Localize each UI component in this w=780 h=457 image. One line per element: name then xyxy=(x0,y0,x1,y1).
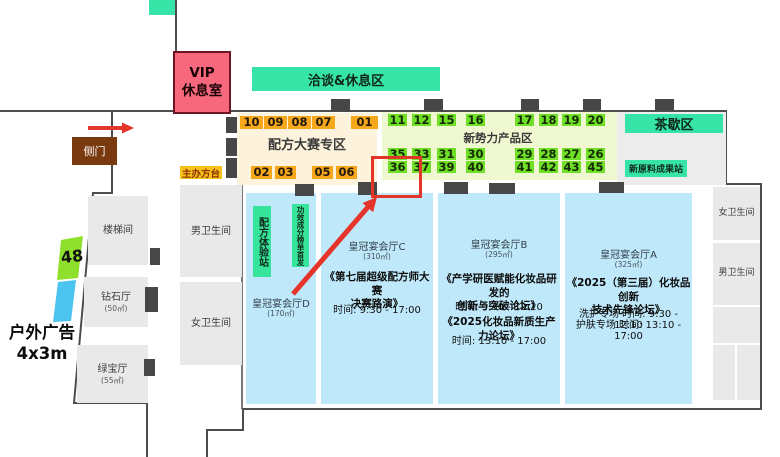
door xyxy=(521,99,539,111)
hall-b: 皇冠宴会厅B (295㎡) 《产学研医赋能化妆品研发的 创新与突破论坛》 时间:… xyxy=(438,193,560,404)
booth: 03 xyxy=(275,166,296,179)
event-time: 时间: 13:10 - 17:00 xyxy=(438,332,560,347)
door xyxy=(145,287,158,312)
booth: 17 xyxy=(515,114,534,126)
room-label: 绿宝厅 xyxy=(98,363,128,376)
door xyxy=(599,182,624,193)
door xyxy=(226,158,237,178)
booth: 45 xyxy=(586,161,605,173)
mens-restroom-right: 男卫生间 xyxy=(713,243,760,305)
booth: 11 xyxy=(388,114,407,126)
lounge-zone: 洽谈&休息区 xyxy=(252,67,440,91)
hall-area: (325㎡) xyxy=(565,259,692,270)
side-door: 侧门 xyxy=(72,137,117,165)
booth: 28 xyxy=(539,148,558,160)
event-time: 时间: 9:30 - 12:10 xyxy=(438,298,560,313)
door xyxy=(226,138,237,156)
outdoor-ad-label-line1: 户外广告 xyxy=(0,323,84,344)
mens-restroom-left: 男卫生间 xyxy=(180,185,242,277)
booth: 15 xyxy=(437,114,456,126)
booth: 05 xyxy=(312,166,333,179)
booth: 09 xyxy=(264,116,287,129)
booth: 10 xyxy=(240,116,263,129)
vip-lounge: VIP 休息室 xyxy=(173,51,231,114)
door xyxy=(655,99,674,111)
vip-label-line2: 休息室 xyxy=(182,83,223,101)
booth: 39 xyxy=(437,161,456,173)
hall-c: 皇冠宴会厅C (310㎡) 《第七届超级配方师大赛 决赛路演》 时间: 9:30… xyxy=(321,193,433,404)
utility-room xyxy=(737,345,760,400)
booth: 16 xyxy=(466,114,485,126)
door xyxy=(424,99,443,111)
room-label: 楼梯间 xyxy=(103,224,133,237)
booth: 27 xyxy=(562,148,581,160)
womens-restroom-right: 女卫生间 xyxy=(713,187,760,240)
room-label: 男卫生间 xyxy=(191,225,231,238)
hall-a: 皇冠宴会厅A (325㎡) 《2025（第三届）化妆品创新 技术先锋论坛》 洗护… xyxy=(565,193,692,404)
room-area: (55㎡) xyxy=(101,376,124,386)
room-label: 女卫生间 xyxy=(191,317,231,330)
door xyxy=(226,117,237,133)
booth: 31 xyxy=(437,148,456,160)
booth: 43 xyxy=(562,161,581,173)
door xyxy=(444,182,468,194)
booth: 02 xyxy=(251,166,272,179)
hall-area: (310㎡) xyxy=(321,251,433,262)
booth: 08 xyxy=(288,116,311,129)
booth: 30 xyxy=(466,148,485,160)
room-label: 女卫生间 xyxy=(718,208,754,220)
door xyxy=(489,183,515,194)
booth: 06 xyxy=(336,166,357,179)
new-force-zone-label: 新势力产品区 xyxy=(462,130,534,146)
booth: 12 xyxy=(412,114,431,126)
outdoor-ad-blue-panel xyxy=(53,280,76,322)
hall-area: (295㎡) xyxy=(438,249,560,260)
door xyxy=(295,184,314,196)
booth: 07 xyxy=(312,116,335,129)
booth: 41 xyxy=(515,161,534,173)
hall-area: (170㎡) xyxy=(246,308,316,319)
womens-restroom-left: 女卫生间 xyxy=(180,282,242,365)
booth: 40 xyxy=(466,161,485,173)
event-time: 护肤专场 时间: 13:10 - 17:00 xyxy=(565,316,692,342)
tea-break-zone: 茶歇区 xyxy=(625,114,723,133)
room-label: 钻石厅 xyxy=(101,291,131,304)
booth: 29 xyxy=(515,148,534,160)
outdoor-ad-number: 48 xyxy=(59,246,85,267)
room-label: 男卫生间 xyxy=(718,268,754,280)
outdoor-ad-label: 户外广告 4x3m xyxy=(0,323,84,364)
vip-label-line1: VIP xyxy=(189,65,214,83)
efficacy-ranking-station: 功效成分榜单首发 xyxy=(292,204,309,267)
booth: 18 xyxy=(539,114,558,126)
emerald-hall-room: 绿宝厅 (55㎡) xyxy=(77,345,148,403)
room-area: (50㎡) xyxy=(105,304,128,314)
booth: 26 xyxy=(586,148,605,160)
formula-contest-zone-label: 配方大赛专区 xyxy=(237,134,377,153)
booth: 42 xyxy=(539,161,558,173)
booth: 20 xyxy=(586,114,605,126)
booth: 01 xyxy=(351,116,378,129)
outdoor-ad-label-line2: 4x3m xyxy=(0,344,84,365)
utility-room xyxy=(713,307,760,343)
organizer-desk: 主办方台 xyxy=(180,166,222,179)
door xyxy=(150,248,160,265)
event-time: 时间: 9:30 - 17:00 xyxy=(321,301,433,316)
floor-plan: VIP 休息室 洽谈&休息区 侧门 主办方台 配方大赛专区 新势力产品区 茶歇区… xyxy=(0,0,780,457)
booth: 19 xyxy=(562,114,581,126)
door xyxy=(144,359,155,376)
door xyxy=(331,99,350,111)
raw-material-station: 新原料成果站 xyxy=(625,160,687,177)
formula-experience-station: 配方体验站 xyxy=(253,206,271,277)
utility-room xyxy=(713,345,735,400)
stairwell-room: 楼梯间 xyxy=(88,196,148,265)
door xyxy=(583,99,601,111)
diamond-hall-room: 钻石厅 (50㎡) xyxy=(84,277,148,327)
top-left-block xyxy=(149,0,175,15)
highlight-rect xyxy=(371,156,422,198)
